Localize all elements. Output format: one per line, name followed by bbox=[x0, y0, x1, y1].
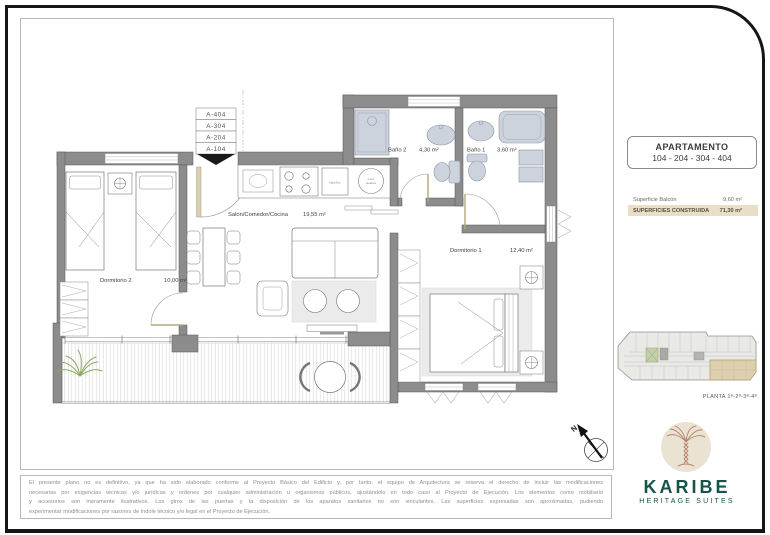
dining-table bbox=[203, 228, 225, 286]
unit-stack: A-404 A-304 A-204 A-104 bbox=[196, 108, 236, 165]
brand-tagline: HERITAGE SUITES bbox=[612, 498, 762, 505]
surface-row-highlight: SUPERFICIES CONSTRUIDA 71,30 m² bbox=[628, 205, 758, 216]
surface-row: Superficie Balcón 9,60 m² bbox=[628, 194, 758, 205]
cabinet bbox=[519, 150, 543, 165]
north-arrow-icon: N bbox=[569, 423, 607, 461]
plan-sheet: A-404 A-304 A-204 A-104 bbox=[0, 0, 770, 535]
wardrobe bbox=[60, 282, 88, 336]
key-plan bbox=[610, 322, 762, 394]
washer-label: termo bbox=[368, 177, 375, 181]
apartment-title: APARTAMENTO bbox=[656, 142, 729, 152]
wardrobe bbox=[398, 250, 420, 382]
room-area: 19,55 m² bbox=[303, 212, 326, 218]
stair-core-icon bbox=[646, 348, 658, 362]
disclaimer-line: necesarias por exigencias técnicas y/o j… bbox=[29, 489, 603, 499]
entry-marker-icon bbox=[197, 154, 235, 165]
unit-label: A-304 bbox=[206, 123, 226, 130]
apartment-numbers: 104 - 204 - 304 - 404 bbox=[652, 153, 731, 163]
key-plan-label: PLANTA 1ª-2ª-3ª-4ª bbox=[610, 394, 757, 400]
room-area: 12,40 m² bbox=[510, 248, 533, 254]
brand-name: KARIBE bbox=[612, 477, 762, 498]
stove bbox=[280, 167, 318, 196]
cabinet bbox=[519, 167, 543, 182]
surface-value: 9,60 m² bbox=[723, 197, 742, 203]
surface-table: Superficie Balcón 9,60 m² SUPERFICIES CO… bbox=[628, 194, 758, 216]
disclaimer-line: El presente plano no es definitivo, ya q… bbox=[29, 479, 603, 489]
washer-label: lavadora bbox=[366, 181, 377, 185]
room-label: Salón/Comedor/Cocina bbox=[228, 212, 289, 218]
room-label: Baño 2 bbox=[388, 148, 406, 154]
tv bbox=[320, 332, 344, 335]
key-plan-highlight bbox=[710, 360, 756, 380]
round-table bbox=[315, 362, 346, 393]
apartment-info-box: APARTAMENTO 104 - 204 - 304 - 404 bbox=[627, 136, 757, 169]
disclaimer-line: experimentar modificaciones por razones … bbox=[29, 508, 603, 518]
brand-logo bbox=[661, 422, 711, 472]
surface-label: SUPERFICIES CONSTRUIDA bbox=[633, 208, 709, 214]
fridge-label: frigorífico bbox=[329, 181, 341, 185]
disclaimer-line: y accesorios son meramente ilustrativos.… bbox=[29, 498, 603, 508]
disclaimer-box: El presente plano no es definitivo, ya q… bbox=[20, 475, 612, 519]
washbasin bbox=[468, 121, 494, 141]
room-label: Dormitorio 1 bbox=[450, 248, 482, 254]
bedroom2-furniture bbox=[60, 172, 176, 336]
toilet bbox=[449, 161, 460, 183]
armchair bbox=[257, 281, 288, 316]
room-label: Baño 1 bbox=[467, 148, 485, 154]
palm-tree-icon bbox=[662, 423, 710, 471]
room-label: Dormitorio 2 bbox=[100, 278, 132, 284]
washer bbox=[359, 169, 384, 194]
tv-bench bbox=[307, 325, 357, 332]
unit-label: A-204 bbox=[206, 135, 226, 142]
floor-plan-svg: A-404 A-304 A-204 A-104 bbox=[21, 19, 611, 467]
floor-plan-panel: A-404 A-304 A-204 A-104 bbox=[20, 18, 614, 470]
bathroom1-fixtures bbox=[467, 111, 545, 182]
surface-value: 71,30 m² bbox=[720, 208, 742, 214]
kitchen: frigorífico termo lavadora bbox=[238, 165, 390, 198]
bathtub bbox=[499, 111, 545, 143]
pouf bbox=[304, 290, 327, 313]
room-area: 3,60 m² bbox=[497, 148, 517, 154]
surface-label: Superficie Balcón bbox=[633, 197, 677, 203]
room-area: 10,00 m² bbox=[164, 278, 187, 284]
room-area: 4,30 m² bbox=[419, 148, 439, 154]
unit-label: A-104 bbox=[206, 146, 226, 153]
unit-label: A-404 bbox=[206, 112, 226, 119]
washbasin bbox=[427, 125, 455, 145]
dining-set bbox=[187, 228, 240, 286]
pouf bbox=[337, 290, 360, 313]
